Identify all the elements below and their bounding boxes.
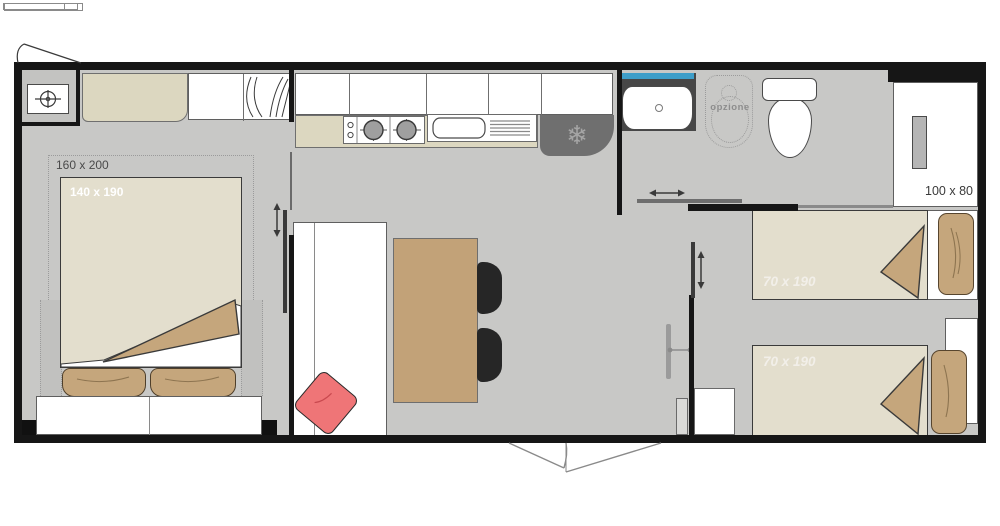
shower-door-handle — [912, 116, 927, 169]
headboard-divider — [149, 397, 150, 436]
chair-top — [477, 262, 502, 314]
bedroom-wardrobe — [188, 73, 290, 120]
dining-table — [393, 238, 478, 403]
hanging-clothes-icon — [244, 75, 290, 119]
hob — [343, 116, 425, 144]
gas-heater-icon — [28, 85, 68, 113]
wall-right — [978, 62, 986, 443]
window-frame — [3, 3, 78, 10]
bathroom-door-arrow-icon — [648, 186, 686, 200]
wall-left — [14, 62, 22, 443]
cabinet-divider — [426, 74, 427, 116]
bedside-strip-right — [241, 300, 263, 396]
bedroom-door-track — [290, 152, 292, 210]
kitchen-sink — [427, 114, 537, 142]
wall-top — [14, 62, 986, 70]
twinroom-door-arrow-icon — [694, 250, 708, 290]
cabinet-divider — [349, 74, 350, 116]
gas-locker-wall-bottom — [22, 122, 80, 126]
wall-bedroom-divider-bottom — [289, 235, 294, 437]
living-corner-cabinet — [676, 398, 688, 435]
gas-heater-box — [27, 84, 69, 114]
gas-locker-wall-right — [76, 70, 80, 126]
pillow-right — [150, 368, 236, 397]
bedroom-door-arrow-icon — [270, 202, 284, 238]
wall-shower-bottom-line — [798, 205, 893, 208]
wall-bathroom-left — [617, 70, 622, 215]
wall-bathroom-bottom — [688, 204, 798, 211]
twin-bed-top-blanket — [875, 214, 930, 300]
headboard — [36, 396, 262, 435]
optional-toilet-bowl — [711, 96, 749, 143]
bathroom-window-strip — [622, 73, 694, 79]
headboard-corner-left — [20, 420, 36, 435]
washbasin-drain — [655, 104, 663, 112]
shower-cubicle: 100 x 80 — [893, 82, 978, 207]
twin-bed-bottom-pillow — [931, 350, 967, 434]
washbasin — [622, 86, 693, 130]
snowflake-icon: ❄ — [566, 120, 588, 150]
wall-twinroom-divider — [689, 295, 694, 435]
shower-size-label: 100 x 80 — [894, 184, 973, 198]
master-bed-mattress — [60, 177, 242, 368]
bedside-strip-left — [40, 300, 62, 396]
bedroom-shelf — [82, 73, 188, 122]
blanket-fold-graphic — [61, 178, 241, 367]
twin-room-corner-cabinet — [694, 388, 735, 435]
chair-bottom — [477, 328, 502, 382]
wall-top-right-thick — [888, 62, 986, 82]
gas-locker-door-swing — [10, 42, 86, 66]
twin-bed-bottom-blanket — [875, 348, 930, 436]
cabinet-divider — [488, 74, 489, 116]
entrance-door-swing — [503, 441, 665, 483]
kitchen-upper-cabinets — [295, 73, 613, 115]
wall-bottom — [14, 435, 986, 443]
wall-bedroom-divider-top — [289, 70, 294, 122]
toilet-tank — [762, 78, 817, 101]
mobile-home-floorplan: 160 x 200 140 x 190 — [0, 0, 1000, 526]
twin-bed-top-pillow — [938, 213, 974, 295]
pillow-left — [62, 368, 146, 397]
window-left — [0, 0, 10, 87]
cabinet-divider — [541, 74, 542, 116]
sink-basin-icon — [428, 115, 536, 141]
headboard-corner-right — [262, 420, 277, 435]
hob-burners-icon — [344, 117, 424, 143]
